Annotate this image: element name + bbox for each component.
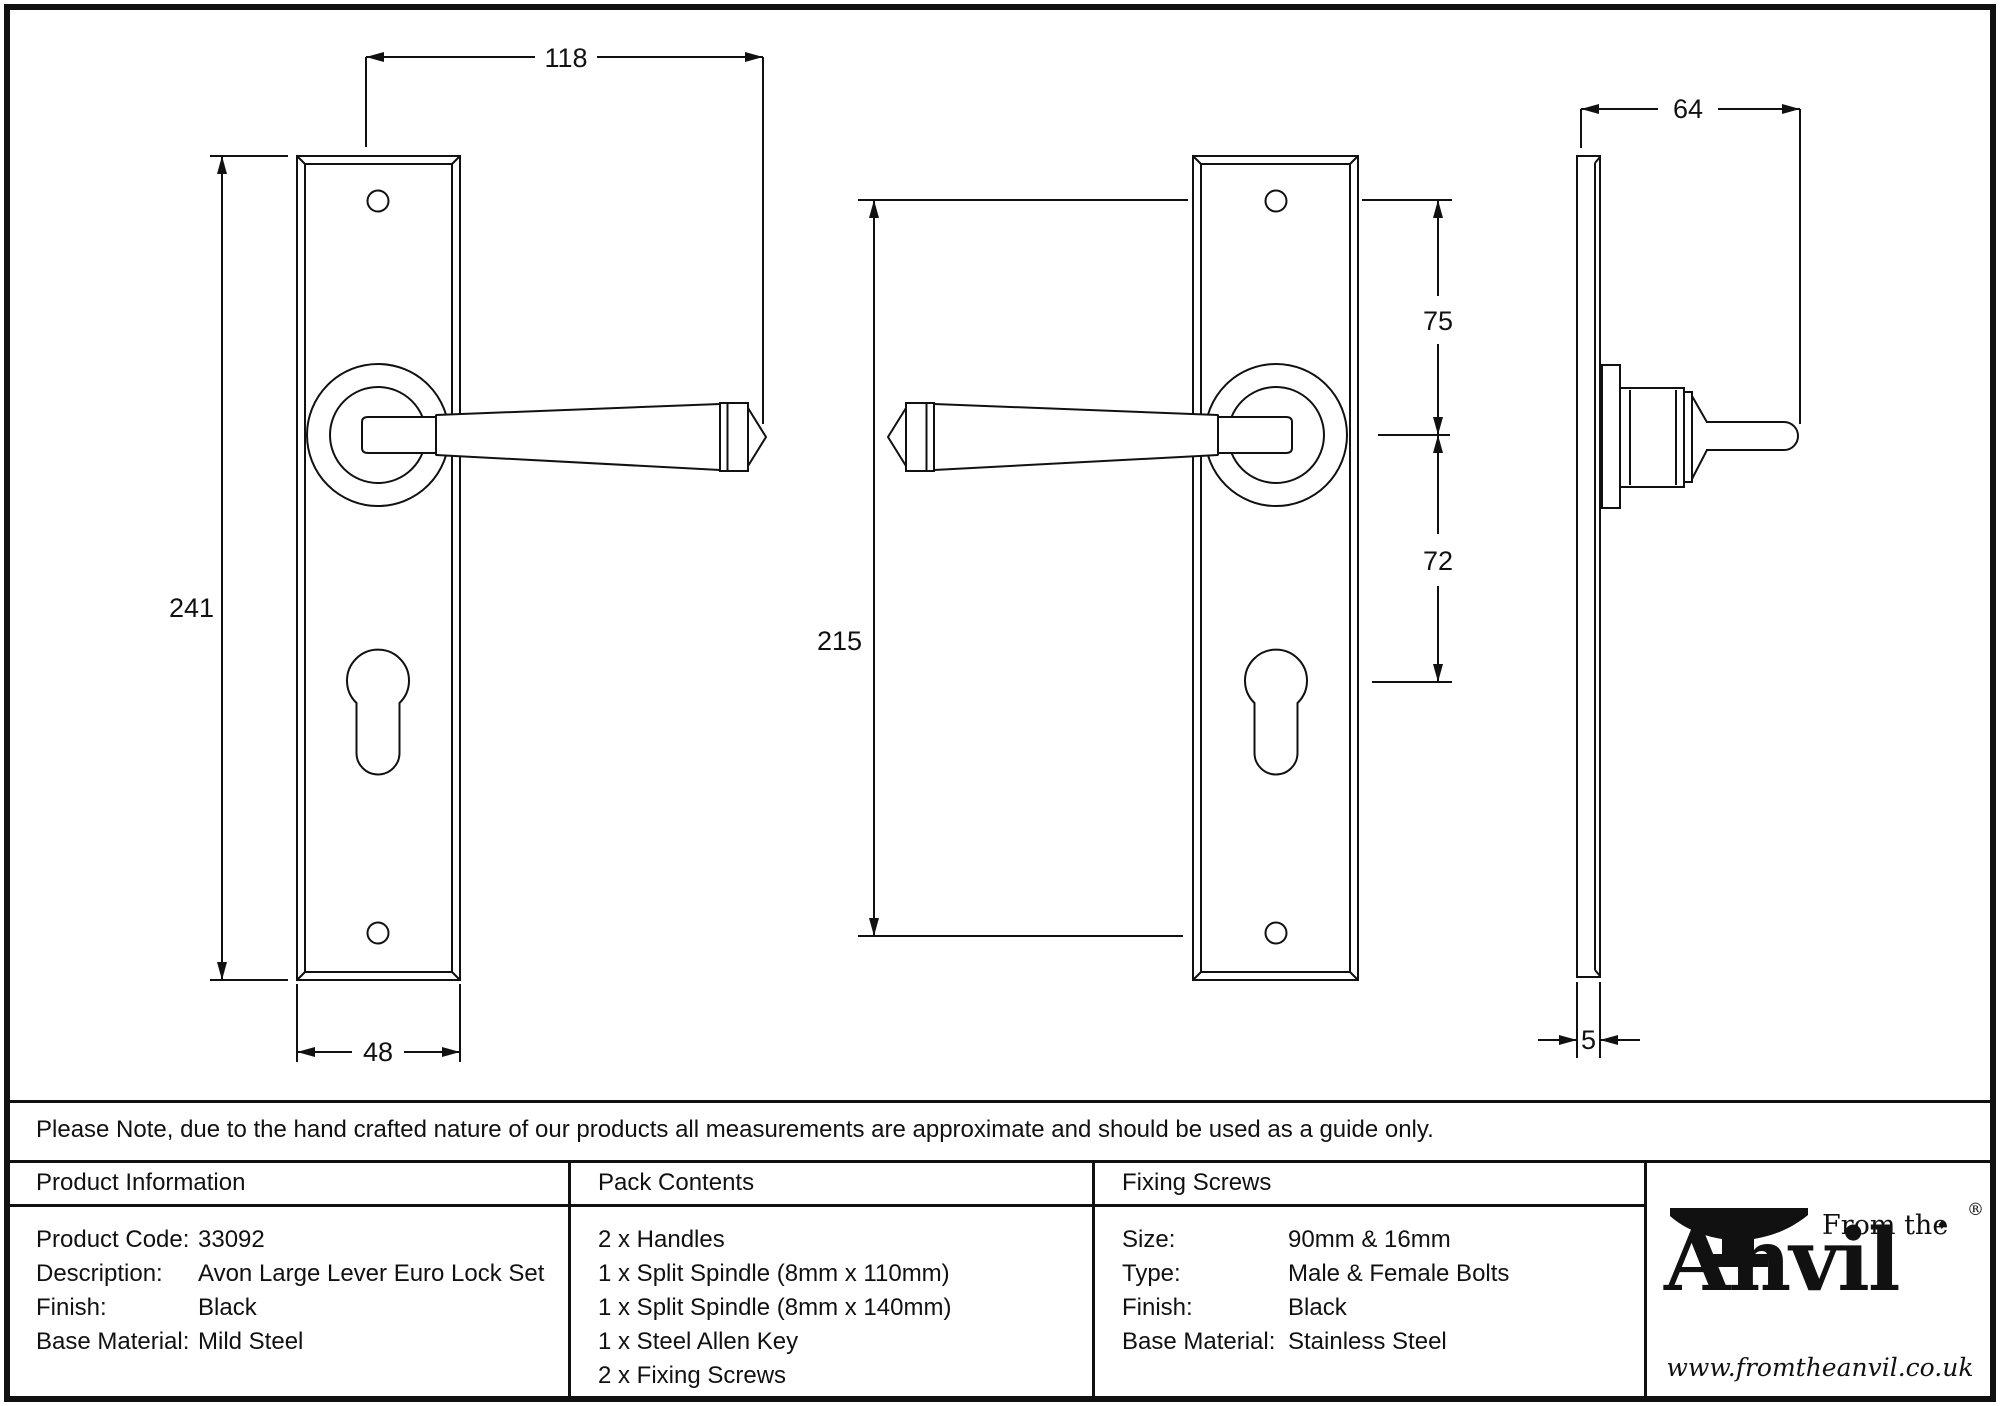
pack-contents-header: Pack Contents bbox=[598, 1169, 754, 1197]
header-row-bottom-border bbox=[10, 1204, 1647, 1207]
note-row-top-border bbox=[10, 1100, 1990, 1103]
pack-item: 2 x Handles bbox=[598, 1226, 725, 1254]
side-view: 64 5 bbox=[1538, 94, 1800, 1058]
logo-website-url: www.fromtheanvil.co.uk bbox=[1652, 1353, 1988, 1382]
column-divider-1 bbox=[568, 1160, 571, 1396]
dim-plate-thickness: 5 bbox=[1538, 982, 1640, 1058]
backplate-outline bbox=[1193, 156, 1358, 980]
handle-finial bbox=[888, 408, 906, 466]
finish-value: Black bbox=[198, 1294, 257, 1322]
lever-handle bbox=[888, 403, 1292, 471]
diamond-icon: ♦ bbox=[1938, 1216, 1946, 1233]
pack-item: 1 x Split Spindle (8mm x 140mm) bbox=[598, 1294, 951, 1322]
dim-label-241: 241 bbox=[169, 593, 214, 623]
logo-anvil-text: Anvil bbox=[1664, 1210, 1899, 1311]
column-divider-3 bbox=[1644, 1160, 1647, 1396]
dim-screw-to-spindle: 75 bbox=[1423, 200, 1453, 435]
screw-hole-top bbox=[1266, 191, 1287, 212]
screw-finish-value: Black bbox=[1288, 1294, 1347, 1322]
spec-sheet-page: { "drawings": { "front_view_right": { "d… bbox=[0, 0, 2000, 1406]
pack-item: 1 x Split Spindle (8mm x 110mm) bbox=[598, 1260, 950, 1288]
screw-type-label: Type: bbox=[1122, 1260, 1181, 1288]
approximate-measurements-note: Please Note, due to the hand crafted nat… bbox=[36, 1116, 1434, 1144]
header-row-top-border bbox=[10, 1160, 1990, 1163]
backplate-side bbox=[1577, 156, 1600, 977]
description-label: Description: bbox=[36, 1260, 163, 1288]
dim-plate-width: 48 bbox=[297, 984, 460, 1067]
screw-material-label: Base Material: bbox=[1122, 1328, 1275, 1356]
dim-label-64: 64 bbox=[1673, 94, 1703, 124]
screw-finish-label: Finish: bbox=[1122, 1294, 1193, 1322]
column-divider-2 bbox=[1092, 1160, 1095, 1396]
dim-spindle-to-keyhole: 72 bbox=[1423, 435, 1453, 682]
dim-label-5: 5 bbox=[1581, 1025, 1596, 1055]
screw-material-value: Stainless Steel bbox=[1288, 1328, 1447, 1356]
euro-keyhole bbox=[1245, 650, 1307, 775]
front-view-handle-left: 215 75 72 bbox=[817, 156, 1453, 980]
dim-label-72: 72 bbox=[1423, 546, 1453, 576]
base-material-label: Base Material: bbox=[36, 1328, 189, 1356]
technical-drawing: 241 118 48 bbox=[0, 0, 2000, 1100]
screw-type-value: Male & Female Bolts bbox=[1288, 1260, 1509, 1288]
dim-label-75: 75 bbox=[1423, 306, 1453, 336]
product-information-header: Product Information bbox=[36, 1169, 245, 1197]
euro-keyhole bbox=[347, 650, 409, 775]
pack-item: 2 x Fixing Screws bbox=[598, 1362, 786, 1390]
screw-size-label: Size: bbox=[1122, 1226, 1175, 1254]
screw-hole-bottom bbox=[368, 923, 389, 944]
dim-plate-height: 241 bbox=[169, 156, 288, 980]
pack-item: 1 x Steel Allen Key bbox=[598, 1328, 798, 1356]
rose-side-profile bbox=[1602, 365, 1692, 508]
description-value: Avon Large Lever Euro Lock Set bbox=[198, 1260, 544, 1288]
lever-handle bbox=[362, 403, 766, 471]
dim-screw-centres: 215 bbox=[817, 200, 879, 936]
registered-trademark: ® bbox=[1967, 1200, 1984, 1220]
from-the-anvil-logo: From the ♦ ® Anvil www.fromtheanvil.co.u… bbox=[1652, 1170, 1988, 1392]
fixing-screws-header: Fixing Screws bbox=[1122, 1169, 1271, 1197]
backplate-outline bbox=[297, 156, 460, 980]
dim-label-48: 48 bbox=[363, 1037, 393, 1067]
dim-label-215: 215 bbox=[817, 626, 862, 656]
screw-size-value: 90mm & 16mm bbox=[1288, 1226, 1451, 1254]
front-view-handle-right: 241 118 48 bbox=[169, 43, 766, 1067]
product-code-label: Product Code: bbox=[36, 1226, 189, 1254]
finish-label: Finish: bbox=[36, 1294, 107, 1322]
screw-hole-top bbox=[368, 191, 389, 212]
screw-hole-bottom bbox=[1266, 923, 1287, 944]
dim-handle-length: 118 bbox=[366, 43, 763, 424]
dim-label-118: 118 bbox=[544, 43, 587, 73]
base-material-value: Mild Steel bbox=[198, 1328, 303, 1356]
handle-side-profile bbox=[1692, 396, 1798, 479]
product-code-value: 33092 bbox=[198, 1226, 265, 1254]
